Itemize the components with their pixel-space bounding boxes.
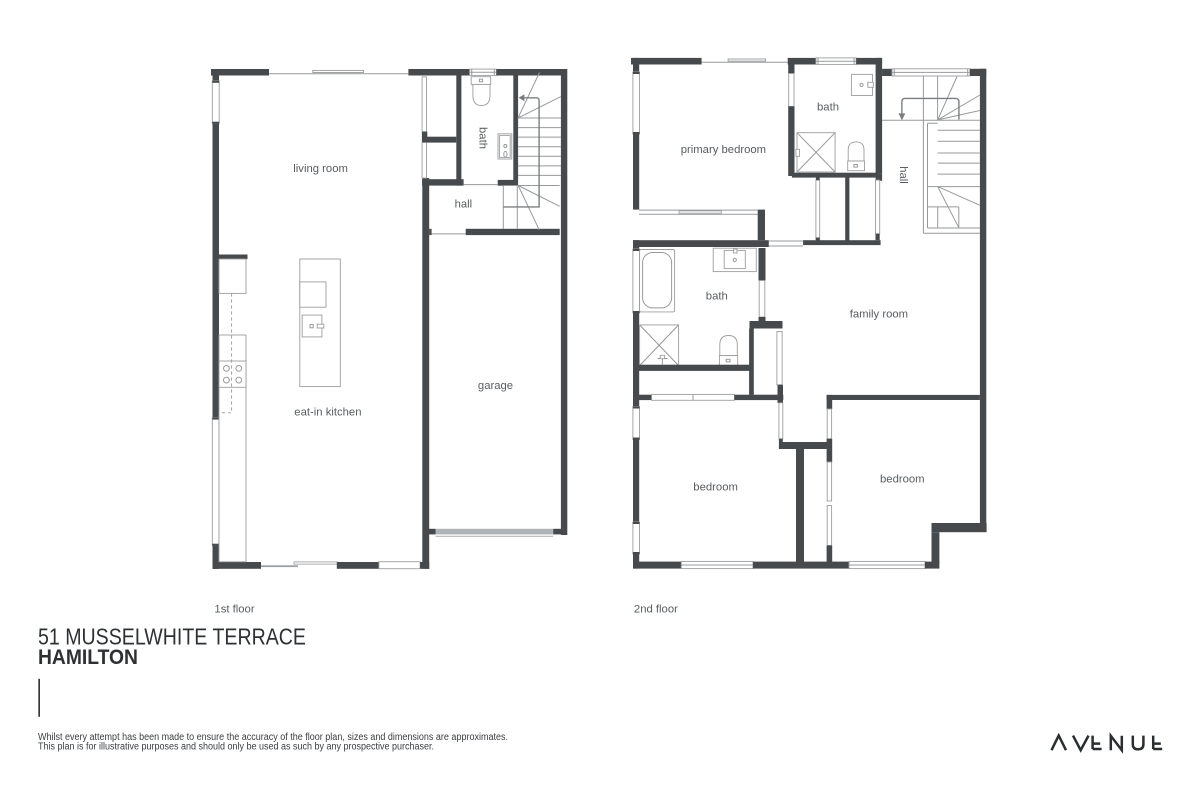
svg-text:family room: family room [850, 309, 908, 321]
svg-text:2nd floor: 2nd floor [634, 603, 678, 615]
svg-text:primary bedroom: primary bedroom [681, 144, 766, 156]
svg-text:hall: hall [455, 199, 473, 211]
svg-text:HAMILTON: HAMILTON [38, 646, 138, 669]
svg-text:bath: bath [817, 102, 839, 114]
svg-text:bath: bath [477, 127, 489, 149]
svg-text:This plan is for illustrative: This plan is for illustrative purposes a… [38, 742, 434, 753]
svg-text:garage: garage [478, 380, 513, 392]
svg-text:hall: hall [897, 166, 909, 184]
svg-text:1st floor: 1st floor [214, 603, 254, 615]
svg-text:living room: living room [293, 163, 348, 175]
svg-text:bedroom: bedroom [693, 482, 738, 494]
svg-text:eat-in kitchen: eat-in kitchen [294, 407, 361, 419]
svg-text:bedroom: bedroom [880, 474, 925, 486]
svg-text:bath: bath [706, 291, 728, 303]
